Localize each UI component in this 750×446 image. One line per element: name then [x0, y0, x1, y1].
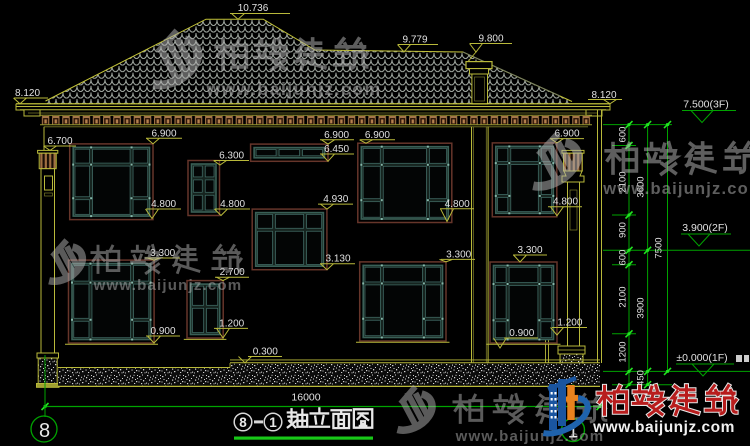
svg-text:3.900(2F): 3.900(2F)	[682, 222, 728, 234]
svg-text:6.300: 6.300	[219, 151, 244, 162]
svg-text:1200: 1200	[618, 341, 629, 362]
svg-text:www.baijunjz.com: www.baijunjz.com	[205, 79, 381, 99]
svg-text:6.900: 6.900	[365, 130, 390, 141]
svg-text:8: 8	[239, 415, 247, 430]
svg-text:www.baijunjz.com: www.baijunjz.com	[592, 419, 735, 436]
svg-text:9.800: 9.800	[478, 34, 503, 45]
svg-text:6.900: 6.900	[151, 128, 176, 139]
svg-text:16000: 16000	[291, 392, 320, 404]
svg-text:4.800: 4.800	[151, 199, 176, 210]
svg-text:6.450: 6.450	[324, 144, 349, 155]
svg-text:0.300: 0.300	[253, 347, 278, 358]
svg-text:8.120: 8.120	[15, 88, 40, 99]
svg-text:4.930: 4.930	[323, 194, 348, 205]
svg-text:6.700: 6.700	[47, 136, 72, 147]
svg-text:7500: 7500	[654, 237, 665, 258]
svg-text:4.800: 4.800	[553, 197, 578, 208]
svg-text:1.200: 1.200	[219, 318, 244, 329]
svg-text:±0.000(1F): ±0.000(1F)	[676, 352, 727, 364]
svg-text:1.200: 1.200	[557, 318, 582, 329]
svg-text:900: 900	[618, 222, 629, 238]
svg-text:www.baijunjz.com: www.baijunjz.com	[455, 428, 605, 445]
svg-text:450: 450	[636, 370, 647, 386]
svg-text:600: 600	[618, 127, 629, 143]
svg-text:3.300: 3.300	[517, 245, 542, 256]
svg-text:www.baijunjz.com: www.baijunjz.com	[602, 180, 750, 198]
svg-text:3.300: 3.300	[446, 249, 471, 260]
svg-text:600: 600	[618, 250, 629, 266]
svg-text:10.736: 10.736	[238, 3, 269, 14]
svg-text:3900: 3900	[636, 297, 647, 318]
svg-text:3.130: 3.130	[325, 254, 350, 265]
svg-text:2100: 2100	[618, 286, 629, 307]
svg-text:www.baijunjz.com: www.baijunjz.com	[93, 277, 243, 294]
svg-text:4.800: 4.800	[445, 199, 470, 210]
svg-text:6.900: 6.900	[324, 130, 349, 141]
svg-text:1: 1	[269, 415, 277, 430]
svg-text:8: 8	[39, 420, 50, 442]
svg-text:4.800: 4.800	[220, 199, 245, 210]
svg-text:9.779: 9.779	[402, 35, 427, 46]
svg-text:7.500(3F): 7.500(3F)	[683, 99, 729, 111]
svg-text:0.900: 0.900	[509, 328, 534, 339]
svg-text:0.900: 0.900	[150, 326, 175, 337]
